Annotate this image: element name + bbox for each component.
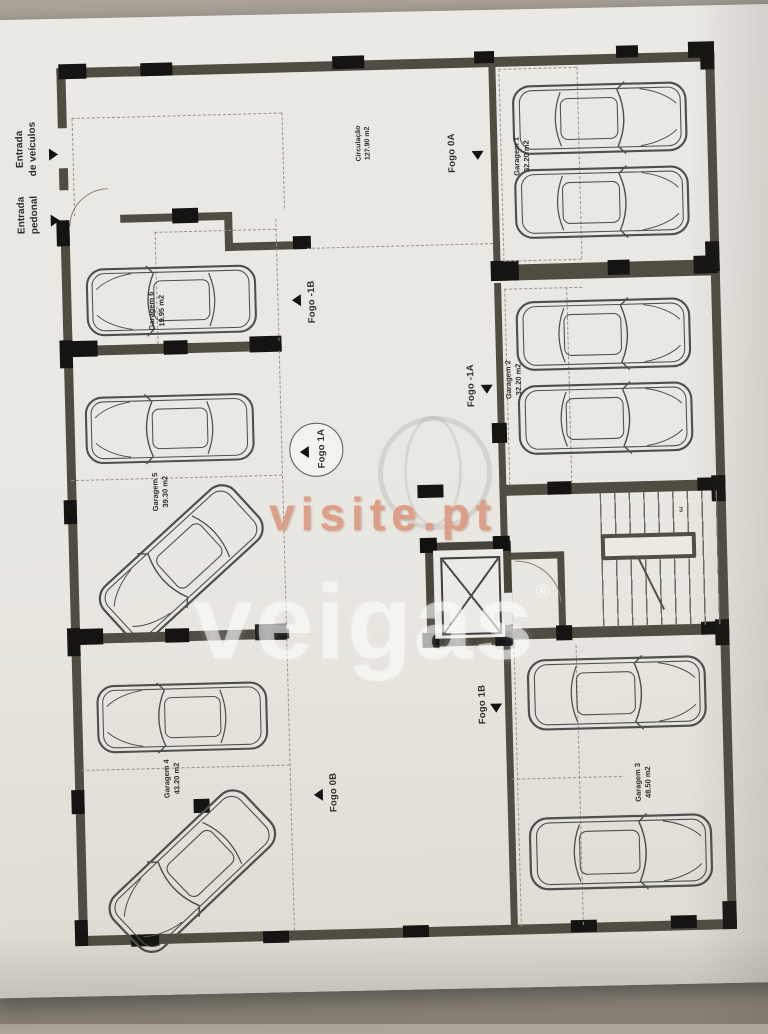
parking-bay-dashed-line bbox=[498, 67, 576, 70]
parking-bay-dashed-line bbox=[72, 118, 76, 216]
wall-segment bbox=[60, 224, 88, 944]
circulation-label: Circulação 127.90 m2 bbox=[354, 125, 373, 161]
photo-shadow bbox=[688, 0, 768, 1024]
car-top-view bbox=[507, 160, 697, 245]
fogo-0a-label: Fogo 0A bbox=[446, 133, 459, 173]
parking-bay-dashed-line bbox=[504, 287, 582, 290]
parking-bay-dashed-line bbox=[72, 113, 282, 119]
wall-segment bbox=[509, 551, 561, 559]
column-block bbox=[140, 62, 172, 76]
parking-bay-dashed-line bbox=[503, 259, 581, 262]
car-top-view bbox=[508, 292, 698, 377]
fogo-1a-label: Fogo 1A bbox=[316, 429, 329, 469]
entrance-pedestrian-line2: pedonal bbox=[28, 196, 42, 235]
column-block bbox=[73, 628, 103, 645]
wall-segment bbox=[59, 168, 69, 190]
car-top-view bbox=[511, 376, 701, 461]
column-block bbox=[571, 920, 597, 933]
circulation-area: 127.90 m2 bbox=[363, 125, 373, 161]
column-block bbox=[172, 208, 198, 224]
car-top-view bbox=[83, 259, 259, 342]
car-top-view bbox=[83, 387, 257, 469]
fogo-0b-label: Fogo 0B bbox=[328, 773, 341, 813]
fogo-minus1b-arrow-icon bbox=[292, 294, 301, 306]
room-area: 48.50 m2 bbox=[643, 763, 654, 802]
column-block bbox=[492, 423, 508, 443]
visite-watermark: visite.pt bbox=[269, 487, 497, 541]
room-label-garagem-2: Garagem 2 32.20 m2 bbox=[503, 360, 524, 399]
room-label-garagem-5: Garagem 5 39.30 m2 bbox=[150, 472, 171, 511]
fogo-minus1b-label: Fogo -1B bbox=[306, 280, 319, 323]
column-block bbox=[556, 625, 572, 640]
entrance-vehicle-label: Entrada de veículos bbox=[13, 122, 40, 177]
room-area: 39.30 m2 bbox=[160, 472, 171, 511]
car-top-view bbox=[94, 675, 270, 760]
photo-shadow bbox=[0, 934, 768, 1024]
parking-bay-dashed-line bbox=[307, 243, 493, 249]
car-top-view bbox=[505, 76, 695, 161]
parking-bay-dashed-line bbox=[155, 229, 276, 233]
fogo-1a-arrow-icon bbox=[300, 446, 309, 458]
entrance-vehicle-arrow-icon bbox=[49, 148, 58, 160]
room-area: 32.20 m2 bbox=[513, 360, 524, 399]
veigas-watermark: veigas® bbox=[194, 563, 551, 684]
fogo-minus1a-arrow-icon bbox=[481, 385, 493, 394]
room-label-garagem-4: Garagem 4 43.20 m2 bbox=[162, 759, 183, 798]
photo-background: 3 Entrada de veículos Entrada pedonal Ci… bbox=[0, 0, 768, 1024]
column-block bbox=[616, 45, 638, 58]
room-area: 19.95 m2 bbox=[156, 291, 167, 330]
fogo-minus1a-label: Fogo -1A bbox=[465, 364, 478, 407]
column-block bbox=[65, 340, 97, 357]
column-block bbox=[58, 64, 86, 80]
column-block bbox=[607, 259, 629, 275]
room-label-garagem-6: Garagem 6 19.95 m2 bbox=[146, 291, 167, 330]
stair-break-line bbox=[636, 555, 665, 610]
room-area: 32.20 m2 bbox=[521, 137, 532, 176]
stair-landing-rail bbox=[601, 532, 697, 560]
column-block bbox=[332, 55, 364, 69]
fogo-1b-label: Fogo 1B bbox=[476, 685, 489, 725]
fogo-1b-arrow-icon bbox=[490, 703, 502, 712]
column-block bbox=[163, 340, 187, 355]
column-block bbox=[474, 51, 494, 64]
entrance-vehicle-line2: de veículos bbox=[26, 122, 40, 177]
column-block bbox=[71, 790, 85, 814]
room-label-garagem-1: Garagem 1 32.20 m2 bbox=[511, 137, 532, 176]
column-block bbox=[490, 260, 519, 281]
parking-bay-dashed-line bbox=[82, 765, 290, 771]
column-block bbox=[249, 336, 281, 353]
parking-bay-dashed-line bbox=[282, 113, 286, 209]
fogo-0b-arrow-icon bbox=[314, 789, 323, 801]
registered-mark: ® bbox=[536, 582, 551, 604]
parking-bay-dashed-line bbox=[275, 219, 279, 341]
room-area: 43.20 m2 bbox=[171, 759, 182, 798]
entrance-pedestrian-label: Entrada pedonal bbox=[15, 196, 42, 235]
parking-bay-dashed-line bbox=[512, 776, 622, 780]
stair-number: 3 bbox=[679, 507, 683, 514]
room-label-garagem-3: Garagem 3 48.50 m2 bbox=[633, 763, 654, 802]
column-block bbox=[64, 500, 78, 524]
fogo-0a-arrow-icon bbox=[472, 151, 484, 160]
column-block bbox=[547, 481, 571, 495]
entrance-pedestrian-line1: Entrada bbox=[15, 196, 29, 235]
entrance-pedestrian-arrow-icon bbox=[51, 214, 60, 226]
parking-bay-dashed-line bbox=[71, 475, 282, 482]
veigas-watermark-text: veigas bbox=[194, 564, 536, 682]
